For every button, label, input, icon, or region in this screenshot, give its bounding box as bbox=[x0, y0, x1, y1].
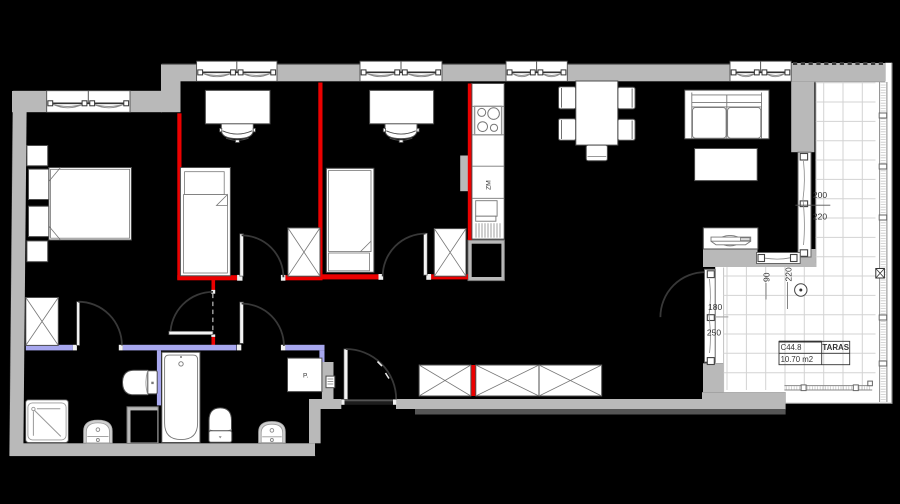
svg-text:10.70 m2: 10.70 m2 bbox=[781, 355, 814, 364]
svg-text:250: 250 bbox=[707, 327, 721, 337]
svg-text:180: 180 bbox=[708, 302, 722, 312]
svg-text:220: 220 bbox=[813, 212, 827, 222]
svg-text:TARAS: TARAS bbox=[822, 343, 849, 352]
svg-text:C44.8: C44.8 bbox=[781, 343, 802, 352]
svg-text:ZM: ZM bbox=[486, 180, 493, 190]
svg-text:P.: P. bbox=[303, 373, 308, 380]
svg-text:200: 200 bbox=[813, 190, 827, 200]
svg-text:220: 220 bbox=[784, 267, 794, 281]
svg-text:90: 90 bbox=[762, 272, 772, 282]
